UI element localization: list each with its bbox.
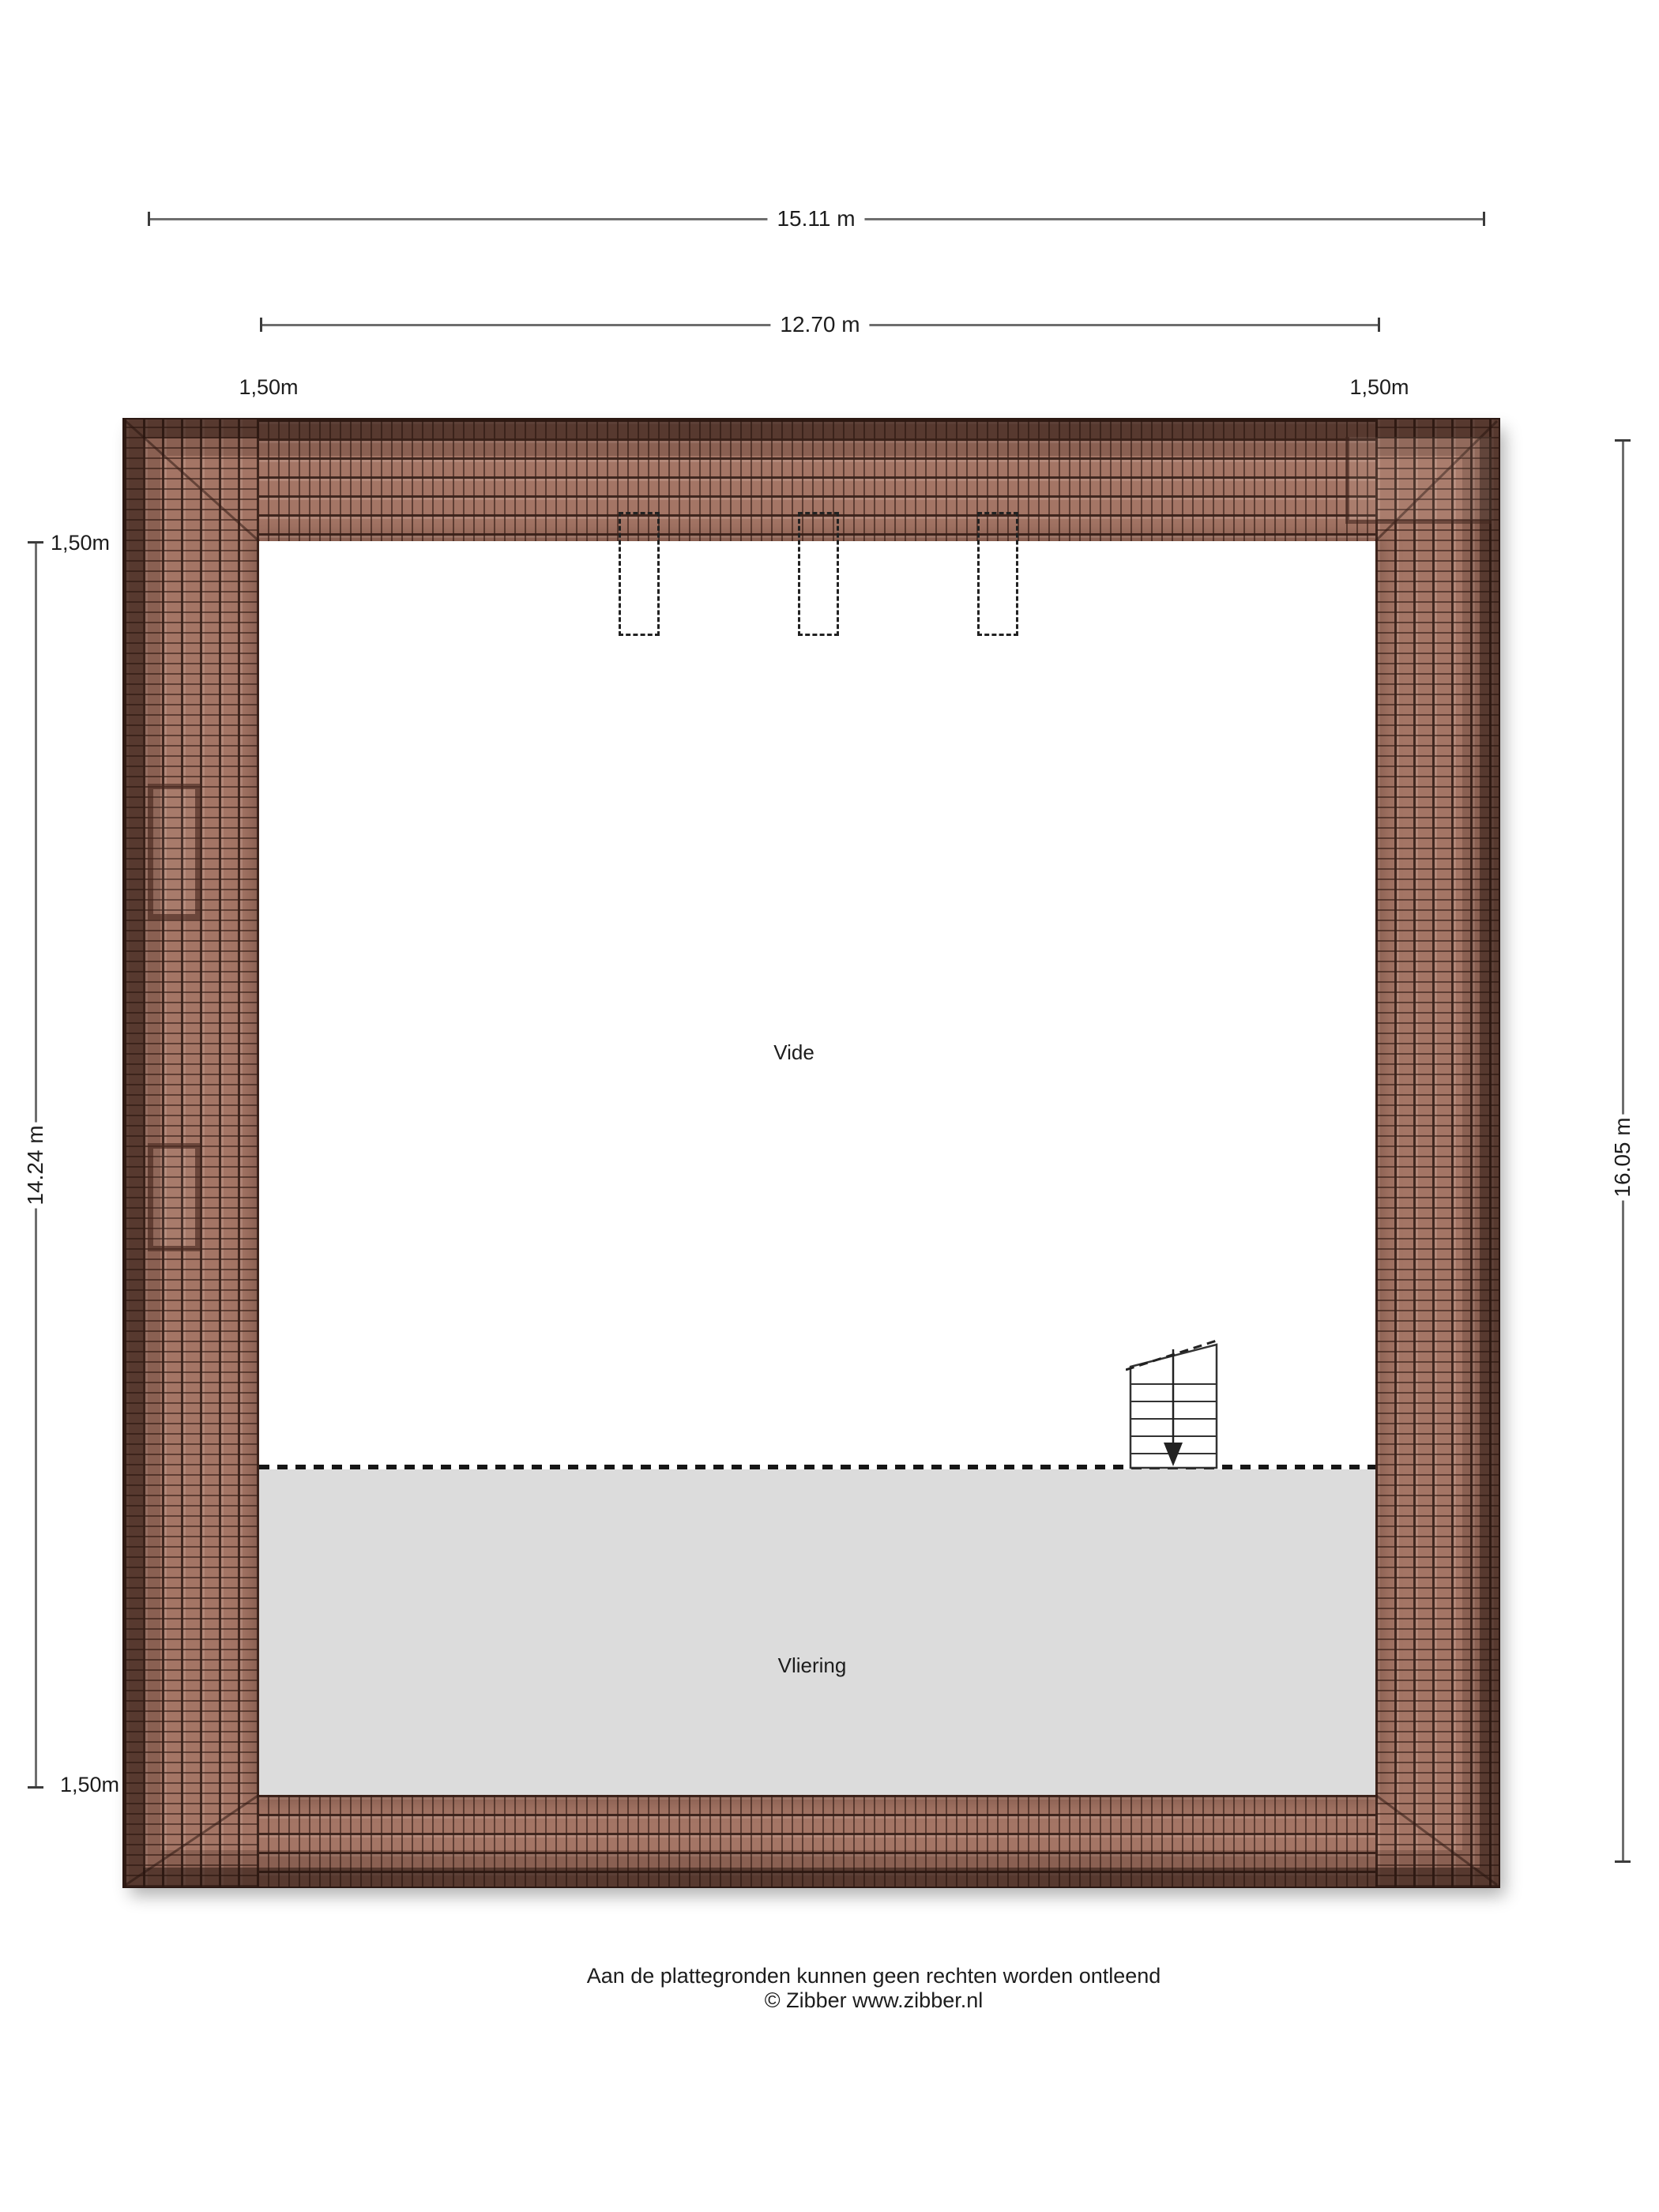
inner-floor-area: Vide Vliering [259, 541, 1375, 1795]
footer-credit: © Zibber www.zibber.nl [587, 1988, 1161, 2013]
dim-total-width-tick-left [148, 212, 150, 226]
dim-inner-width-tick-right [1378, 318, 1380, 332]
dim-right-height-label: 16.05 m [1606, 1114, 1639, 1200]
vliering-label: Vliering [778, 1654, 847, 1676]
dim-left-height-label: 14.24 m [19, 1122, 52, 1208]
dim-left-tick-top [28, 541, 43, 544]
dim-total-width-tick-right [1483, 212, 1485, 226]
dim-left-segment-top-label: 1,50m [51, 531, 110, 555]
dim-inner-width-label: 12.70 m [770, 312, 869, 337]
dim-total-width-label: 15.11 m [767, 206, 864, 231]
stairs [1126, 1335, 1224, 1476]
offset-label-top-right: 1,50m [1349, 375, 1409, 399]
vliering-area: Vliering [259, 1469, 1375, 1795]
dim-inner-width-tick-left [260, 318, 262, 332]
offset-label-top-left: 1,50m [239, 375, 298, 399]
dim-left-segment-bottom-label: 1,50m [60, 1773, 119, 1796]
skylight-1 [619, 512, 660, 636]
left-roof-window-1 [148, 784, 201, 920]
left-roof-window-2 [148, 1143, 201, 1251]
skylight-3 [977, 512, 1018, 636]
floorplan-page: 15.11 m 12.70 m 1,50m 1,50m Vide Vlierin… [0, 0, 1659, 2212]
footer: Aan de plattegronden kunnen geen rechten… [587, 1964, 1161, 2013]
vide-label: Vide [773, 1041, 814, 1063]
skylight-2 [798, 512, 839, 636]
dim-right-tick-bottom [1615, 1860, 1631, 1863]
dim-right-tick-top [1615, 439, 1631, 442]
footer-disclaimer: Aan de plattegronden kunnen geen rechten… [587, 1964, 1161, 1988]
roof-ridge-notch [1345, 437, 1492, 524]
dim-left-tick-bottom [28, 1786, 43, 1789]
